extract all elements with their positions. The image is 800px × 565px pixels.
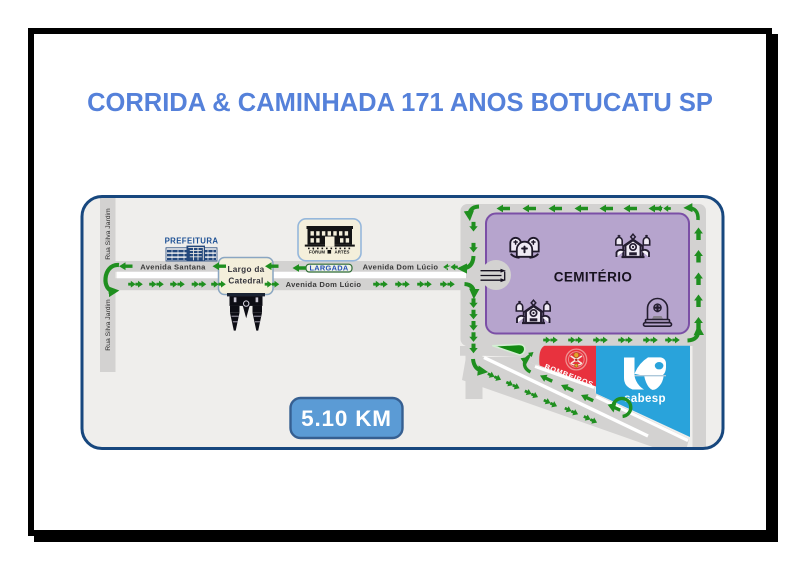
svg-text:Avenida Santana: Avenida Santana: [140, 262, 206, 271]
svg-text:Rua Silva Jardim: Rua Silva Jardim: [105, 208, 112, 260]
svg-text:5.10 KM: 5.10 KM: [301, 406, 392, 431]
svg-text:Rua Silva Jardim: Rua Silva Jardim: [105, 299, 112, 351]
svg-text:FÓRUM: FÓRUM: [309, 250, 325, 255]
svg-text:CEMITÉRIO: CEMITÉRIO: [554, 269, 633, 284]
svg-text:Avenida Dom Lúcio: Avenida Dom Lúcio: [286, 280, 362, 289]
svg-text:LARGADA: LARGADA: [309, 264, 348, 273]
svg-text:Avenida Dom Lúcio: Avenida Dom Lúcio: [363, 262, 439, 271]
svg-text:PREFEITURA: PREFEITURA: [165, 237, 219, 246]
svg-text:Catedral: Catedral: [228, 277, 263, 286]
svg-text:Largo da: Largo da: [228, 265, 265, 274]
svg-text:ARTES: ARTES: [335, 250, 350, 255]
